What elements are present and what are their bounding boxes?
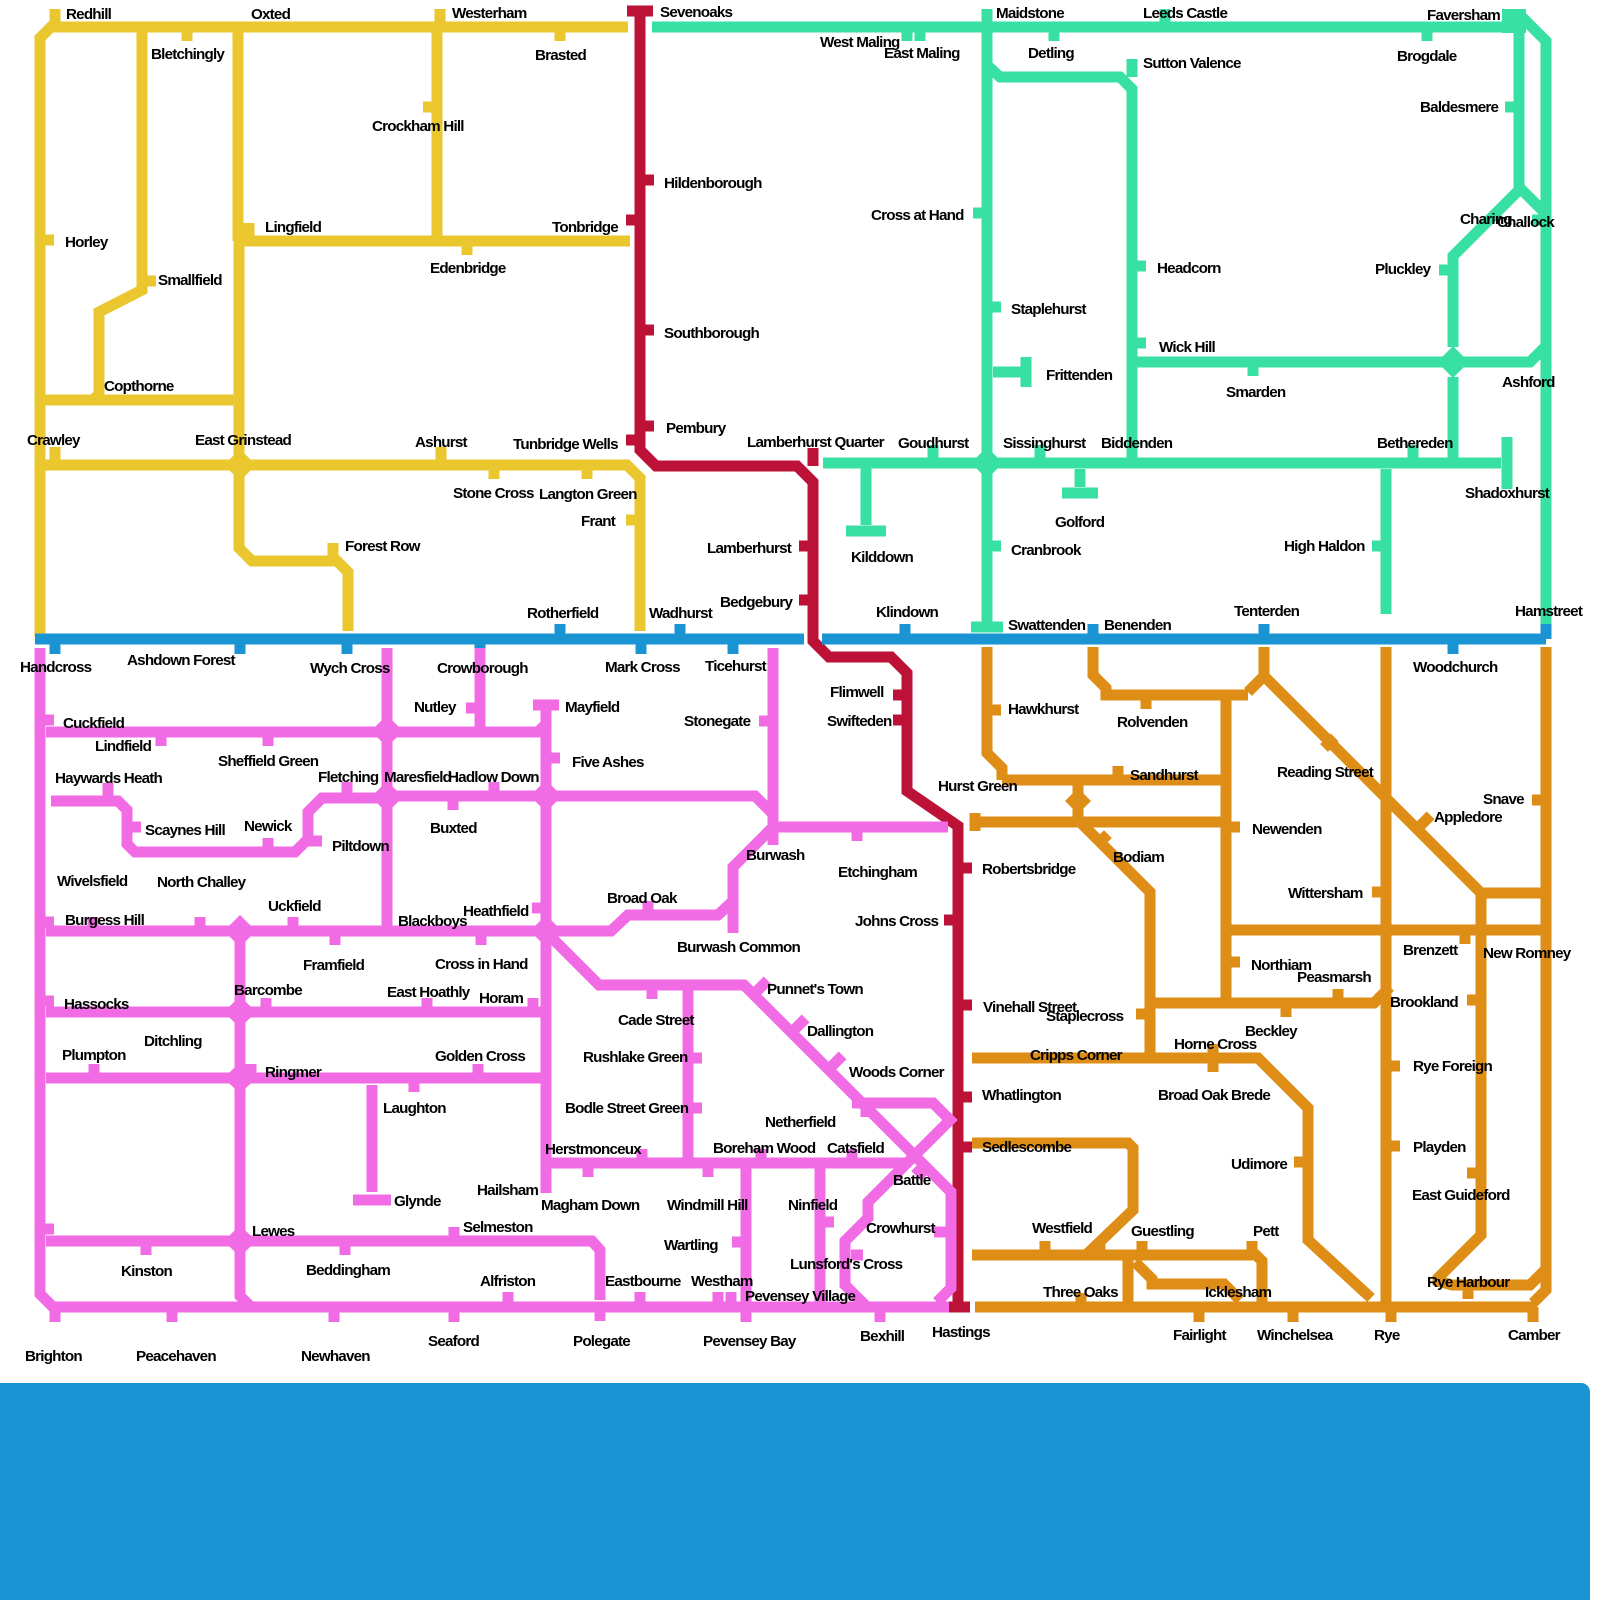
svg-text:Staplecross: Staplecross — [1046, 1008, 1124, 1025]
svg-text:Guestling: Guestling — [1131, 1223, 1194, 1240]
svg-text:Ashford: Ashford — [1502, 374, 1555, 391]
svg-text:Smallfield: Smallfield — [158, 272, 222, 289]
svg-text:Hadlow Down: Hadlow Down — [448, 769, 539, 786]
svg-text:Tenterden: Tenterden — [1234, 603, 1300, 620]
svg-text:Sedlescombe: Sedlescombe — [982, 1139, 1071, 1156]
svg-text:Hassocks: Hassocks — [64, 996, 129, 1013]
svg-text:Golford: Golford — [1055, 514, 1105, 531]
svg-text:Peacehaven: Peacehaven — [136, 1348, 216, 1365]
svg-text:Woodchurch: Woodchurch — [1413, 659, 1498, 676]
svg-text:Nutley: Nutley — [414, 699, 457, 716]
svg-text:Cuckfield: Cuckfield — [63, 715, 125, 732]
svg-text:Bodle Street Green: Bodle Street Green — [565, 1100, 689, 1117]
svg-text:Horam: Horam — [479, 990, 523, 1007]
svg-text:Boreham Wood: Boreham Wood — [713, 1140, 816, 1157]
svg-text:Glynde: Glynde — [394, 1193, 441, 1210]
svg-text:Mayfield: Mayfield — [565, 699, 620, 716]
svg-text:Bexhill: Bexhill — [860, 1328, 905, 1345]
svg-text:Five Ashes: Five Ashes — [572, 754, 644, 771]
svg-text:Burwash: Burwash — [746, 847, 805, 864]
svg-text:Hawkhurst: Hawkhurst — [1008, 701, 1079, 718]
svg-text:Etchingham: Etchingham — [838, 864, 917, 881]
svg-text:Brighton: Brighton — [25, 1348, 82, 1365]
svg-text:Rushlake Green: Rushlake Green — [583, 1049, 688, 1066]
svg-text:Lamberhurst: Lamberhurst — [707, 540, 792, 557]
svg-text:North Challey: North Challey — [157, 874, 247, 891]
svg-text:Buxted: Buxted — [430, 820, 477, 837]
svg-text:Ditchling: Ditchling — [144, 1033, 202, 1050]
svg-text:Wadhurst: Wadhurst — [649, 605, 713, 622]
svg-text:Snave: Snave — [1483, 791, 1524, 808]
svg-text:Tunbridge Wells: Tunbridge Wells — [513, 436, 618, 453]
svg-text:Rolvenden: Rolvenden — [1117, 714, 1188, 731]
svg-text:Cross at Hand: Cross at Hand — [871, 207, 964, 224]
svg-text:Langton Green: Langton Green — [539, 486, 637, 503]
svg-text:Brogdale: Brogdale — [1397, 48, 1457, 65]
svg-text:Westerham: Westerham — [452, 5, 527, 22]
svg-text:Golden Cross: Golden Cross — [435, 1048, 525, 1065]
svg-text:Reading Street: Reading Street — [1277, 764, 1374, 781]
svg-text:Three Oaks: Three Oaks — [1043, 1284, 1118, 1301]
svg-text:Robertsbridge: Robertsbridge — [982, 861, 1076, 878]
svg-text:Leeds Castle: Leeds Castle — [1143, 5, 1227, 22]
svg-text:Brasted: Brasted — [535, 47, 586, 64]
svg-text:Alfriston: Alfriston — [480, 1273, 536, 1290]
svg-text:Westfield: Westfield — [1032, 1220, 1093, 1237]
svg-text:Copthorne: Copthorne — [104, 378, 174, 395]
svg-text:Wick Hill: Wick Hill — [1159, 339, 1216, 356]
svg-text:Haywards Heath: Haywards Heath — [55, 770, 162, 787]
svg-text:Ringmer: Ringmer — [265, 1064, 322, 1081]
svg-text:Handcross: Handcross — [20, 659, 92, 676]
svg-text:Mark Cross: Mark Cross — [605, 659, 680, 676]
svg-text:Icklesham: Icklesham — [1205, 1284, 1272, 1301]
svg-text:Wittersham: Wittersham — [1288, 885, 1363, 902]
svg-text:Burwash Common: Burwash Common — [677, 939, 800, 956]
svg-text:Rye: Rye — [1374, 1327, 1400, 1344]
svg-text:Detling: Detling — [1028, 45, 1074, 62]
svg-text:Westham: Westham — [691, 1273, 753, 1290]
svg-text:Blackboys: Blackboys — [398, 913, 467, 930]
svg-text:Hildenborough: Hildenborough — [664, 175, 762, 192]
svg-text:Wartling: Wartling — [664, 1237, 718, 1254]
svg-text:Horne Cross: Horne Cross — [1174, 1036, 1257, 1053]
svg-text:Magham Down: Magham Down — [541, 1197, 640, 1214]
svg-text:Klindown: Klindown — [876, 604, 938, 621]
svg-text:Lingfield: Lingfield — [265, 219, 322, 236]
svg-text:Windmill Hill: Windmill Hill — [667, 1197, 748, 1214]
svg-text:Ticehurst: Ticehurst — [705, 658, 767, 675]
svg-text:Cranbrook: Cranbrook — [1011, 542, 1082, 559]
svg-text:Headcorn: Headcorn — [1157, 260, 1221, 277]
svg-text:East Hoathly: East Hoathly — [387, 984, 471, 1001]
svg-text:Broad Oak Brede: Broad Oak Brede — [1158, 1087, 1270, 1104]
svg-text:Biddenden: Biddenden — [1101, 435, 1173, 452]
svg-text:Cripps Corner: Cripps Corner — [1030, 1047, 1123, 1064]
svg-text:Lewes: Lewes — [252, 1223, 295, 1240]
svg-text:Sutton Valence: Sutton Valence — [1143, 55, 1241, 72]
svg-text:Uckfield: Uckfield — [268, 898, 321, 915]
svg-text:Faversham: Faversham — [1427, 7, 1500, 24]
svg-text:Scaynes Hill: Scaynes Hill — [145, 822, 225, 839]
svg-text:Heathfield: Heathfield — [463, 903, 529, 920]
svg-text:Flimwell: Flimwell — [830, 684, 884, 701]
svg-text:Newhaven: Newhaven — [301, 1348, 370, 1365]
svg-text:Brenzett: Brenzett — [1403, 942, 1458, 959]
svg-text:Bletchingly: Bletchingly — [151, 46, 225, 63]
svg-text:Bedgebury: Bedgebury — [720, 594, 793, 611]
svg-text:Frant: Frant — [581, 513, 616, 530]
svg-text:Kinston: Kinston — [121, 1263, 172, 1280]
svg-text:Baldesmere: Baldesmere — [1420, 99, 1498, 116]
svg-text:Rye Harbour: Rye Harbour — [1427, 1274, 1510, 1291]
svg-text:Lamberhurst Quarter: Lamberhurst Quarter — [747, 434, 885, 451]
svg-text:Benenden: Benenden — [1104, 617, 1172, 634]
svg-text:Crowhurst: Crowhurst — [866, 1220, 935, 1237]
svg-text:Tonbridge: Tonbridge — [552, 219, 618, 236]
svg-text:Burgess Hill: Burgess Hill — [65, 912, 145, 929]
svg-text:Shadoxhurst: Shadoxhurst — [1465, 485, 1550, 502]
svg-text:Fletching: Fletching — [318, 769, 379, 786]
svg-text:Broad Oak: Broad Oak — [607, 890, 678, 907]
svg-text:Smarden: Smarden — [1226, 384, 1286, 401]
svg-text:Framfield: Framfield — [303, 957, 365, 974]
svg-text:Beddingham: Beddingham — [306, 1262, 390, 1279]
svg-text:Selmeston: Selmeston — [463, 1219, 533, 1236]
svg-text:Woods Corner: Woods Corner — [849, 1064, 945, 1081]
svg-text:Whatlington: Whatlington — [982, 1087, 1061, 1104]
svg-text:Stone Cross: Stone Cross — [453, 485, 534, 502]
svg-text:Dallington: Dallington — [807, 1023, 874, 1040]
svg-text:Crawley: Crawley — [27, 432, 81, 449]
svg-text:High Haldon: High Haldon — [1284, 538, 1365, 555]
svg-text:East Guideford: East Guideford — [1412, 1187, 1510, 1204]
svg-text:Johns Cross: Johns Cross — [855, 913, 939, 930]
svg-text:Netherfield: Netherfield — [765, 1114, 836, 1131]
svg-text:Plumpton: Plumpton — [62, 1047, 126, 1064]
svg-text:Frittenden: Frittenden — [1046, 367, 1113, 384]
svg-text:Pett: Pett — [1253, 1223, 1279, 1240]
svg-text:Udimore: Udimore — [1231, 1156, 1287, 1173]
svg-text:Laughton: Laughton — [383, 1100, 446, 1117]
svg-text:Wych Cross: Wych Cross — [310, 660, 390, 677]
svg-text:Sissinghurst: Sissinghurst — [1003, 435, 1086, 452]
svg-text:East Grinstead: East Grinstead — [195, 432, 292, 449]
svg-text:Wivelsfield: Wivelsfield — [57, 873, 128, 890]
svg-text:Southborough: Southborough — [664, 325, 760, 342]
svg-text:Lunsford's Cross: Lunsford's Cross — [790, 1256, 903, 1273]
svg-text:Forest Row: Forest Row — [345, 538, 421, 555]
svg-text:Ashurst: Ashurst — [415, 434, 468, 451]
svg-text:Crowborough: Crowborough — [437, 660, 528, 677]
svg-text:Barcombe: Barcombe — [234, 982, 302, 999]
svg-text:Herstmonceux: Herstmonceux — [545, 1141, 642, 1158]
svg-text:Ashdown Forest: Ashdown Forest — [127, 652, 236, 669]
svg-text:Maresfield: Maresfield — [384, 769, 452, 786]
svg-text:Newenden: Newenden — [1252, 821, 1322, 838]
svg-text:Kilddown: Kilddown — [851, 549, 913, 566]
svg-text:Challock: Challock — [1497, 214, 1555, 231]
svg-text:Ninfield: Ninfield — [788, 1197, 838, 1214]
svg-text:Swifteden: Swifteden — [827, 713, 892, 730]
svg-text:Rye Foreign: Rye Foreign — [1413, 1058, 1492, 1075]
svg-text:Punnet's Town: Punnet's Town — [767, 981, 863, 998]
svg-text:Seaford: Seaford — [428, 1333, 479, 1350]
svg-text:Lindfield: Lindfield — [95, 738, 152, 755]
svg-text:Edenbridge: Edenbridge — [430, 260, 506, 277]
svg-text:Oxted: Oxted — [251, 6, 291, 23]
svg-text:Crockham Hill: Crockham Hill — [372, 118, 464, 135]
svg-text:Maidstone: Maidstone — [996, 5, 1064, 22]
svg-text:Peasmarsh: Peasmarsh — [1297, 969, 1371, 986]
svg-text:Hastings: Hastings — [932, 1324, 990, 1341]
svg-text:Sheffield Green: Sheffield Green — [218, 753, 319, 770]
svg-text:Pluckley: Pluckley — [1375, 261, 1432, 278]
svg-text:Bodiam: Bodiam — [1113, 849, 1164, 866]
svg-text:Sevenoaks: Sevenoaks — [660, 4, 733, 21]
svg-text:Fairlight: Fairlight — [1173, 1327, 1226, 1344]
svg-text:Eastbourne: Eastbourne — [605, 1273, 681, 1290]
svg-text:East Maling: East Maling — [884, 45, 960, 62]
svg-text:Winchelsea: Winchelsea — [1257, 1327, 1334, 1344]
svg-text:New Romney: New Romney — [1483, 945, 1572, 962]
svg-text:Pevensey Village: Pevensey Village — [745, 1288, 856, 1305]
svg-text:Bethereden: Bethereden — [1377, 435, 1453, 452]
svg-text:Goudhurst: Goudhurst — [898, 435, 969, 452]
svg-text:Polegate: Polegate — [573, 1333, 630, 1350]
svg-text:Catsfield: Catsfield — [827, 1140, 884, 1157]
svg-text:Camber: Camber — [1508, 1327, 1561, 1344]
svg-text:Playden: Playden — [1413, 1139, 1466, 1156]
svg-text:Horley: Horley — [65, 234, 109, 251]
svg-text:Redhill: Redhill — [66, 6, 112, 23]
svg-text:Stonegate: Stonegate — [684, 713, 751, 730]
svg-text:Staplehurst: Staplehurst — [1011, 301, 1086, 318]
svg-text:Newick: Newick — [244, 818, 293, 835]
svg-text:Swattenden: Swattenden — [1008, 617, 1086, 634]
svg-text:Appledore: Appledore — [1434, 809, 1502, 826]
svg-text:Piltdown: Piltdown — [332, 838, 389, 855]
svg-text:Hailsham: Hailsham — [477, 1182, 538, 1199]
svg-text:Pembury: Pembury — [666, 420, 727, 437]
svg-text:Sandhurst: Sandhurst — [1130, 767, 1199, 784]
svg-text:Brookland: Brookland — [1390, 994, 1458, 1011]
svg-text:Pevensey Bay: Pevensey Bay — [703, 1333, 797, 1350]
svg-text:Battle: Battle — [893, 1172, 931, 1189]
svg-text:Hurst Green: Hurst Green — [938, 778, 1017, 795]
svg-text:Cross in Hand: Cross in Hand — [435, 956, 528, 973]
svg-text:Rotherfield: Rotherfield — [527, 605, 599, 622]
svg-text:Hamstreet: Hamstreet — [1515, 603, 1583, 620]
svg-text:Cade Street: Cade Street — [618, 1012, 694, 1029]
